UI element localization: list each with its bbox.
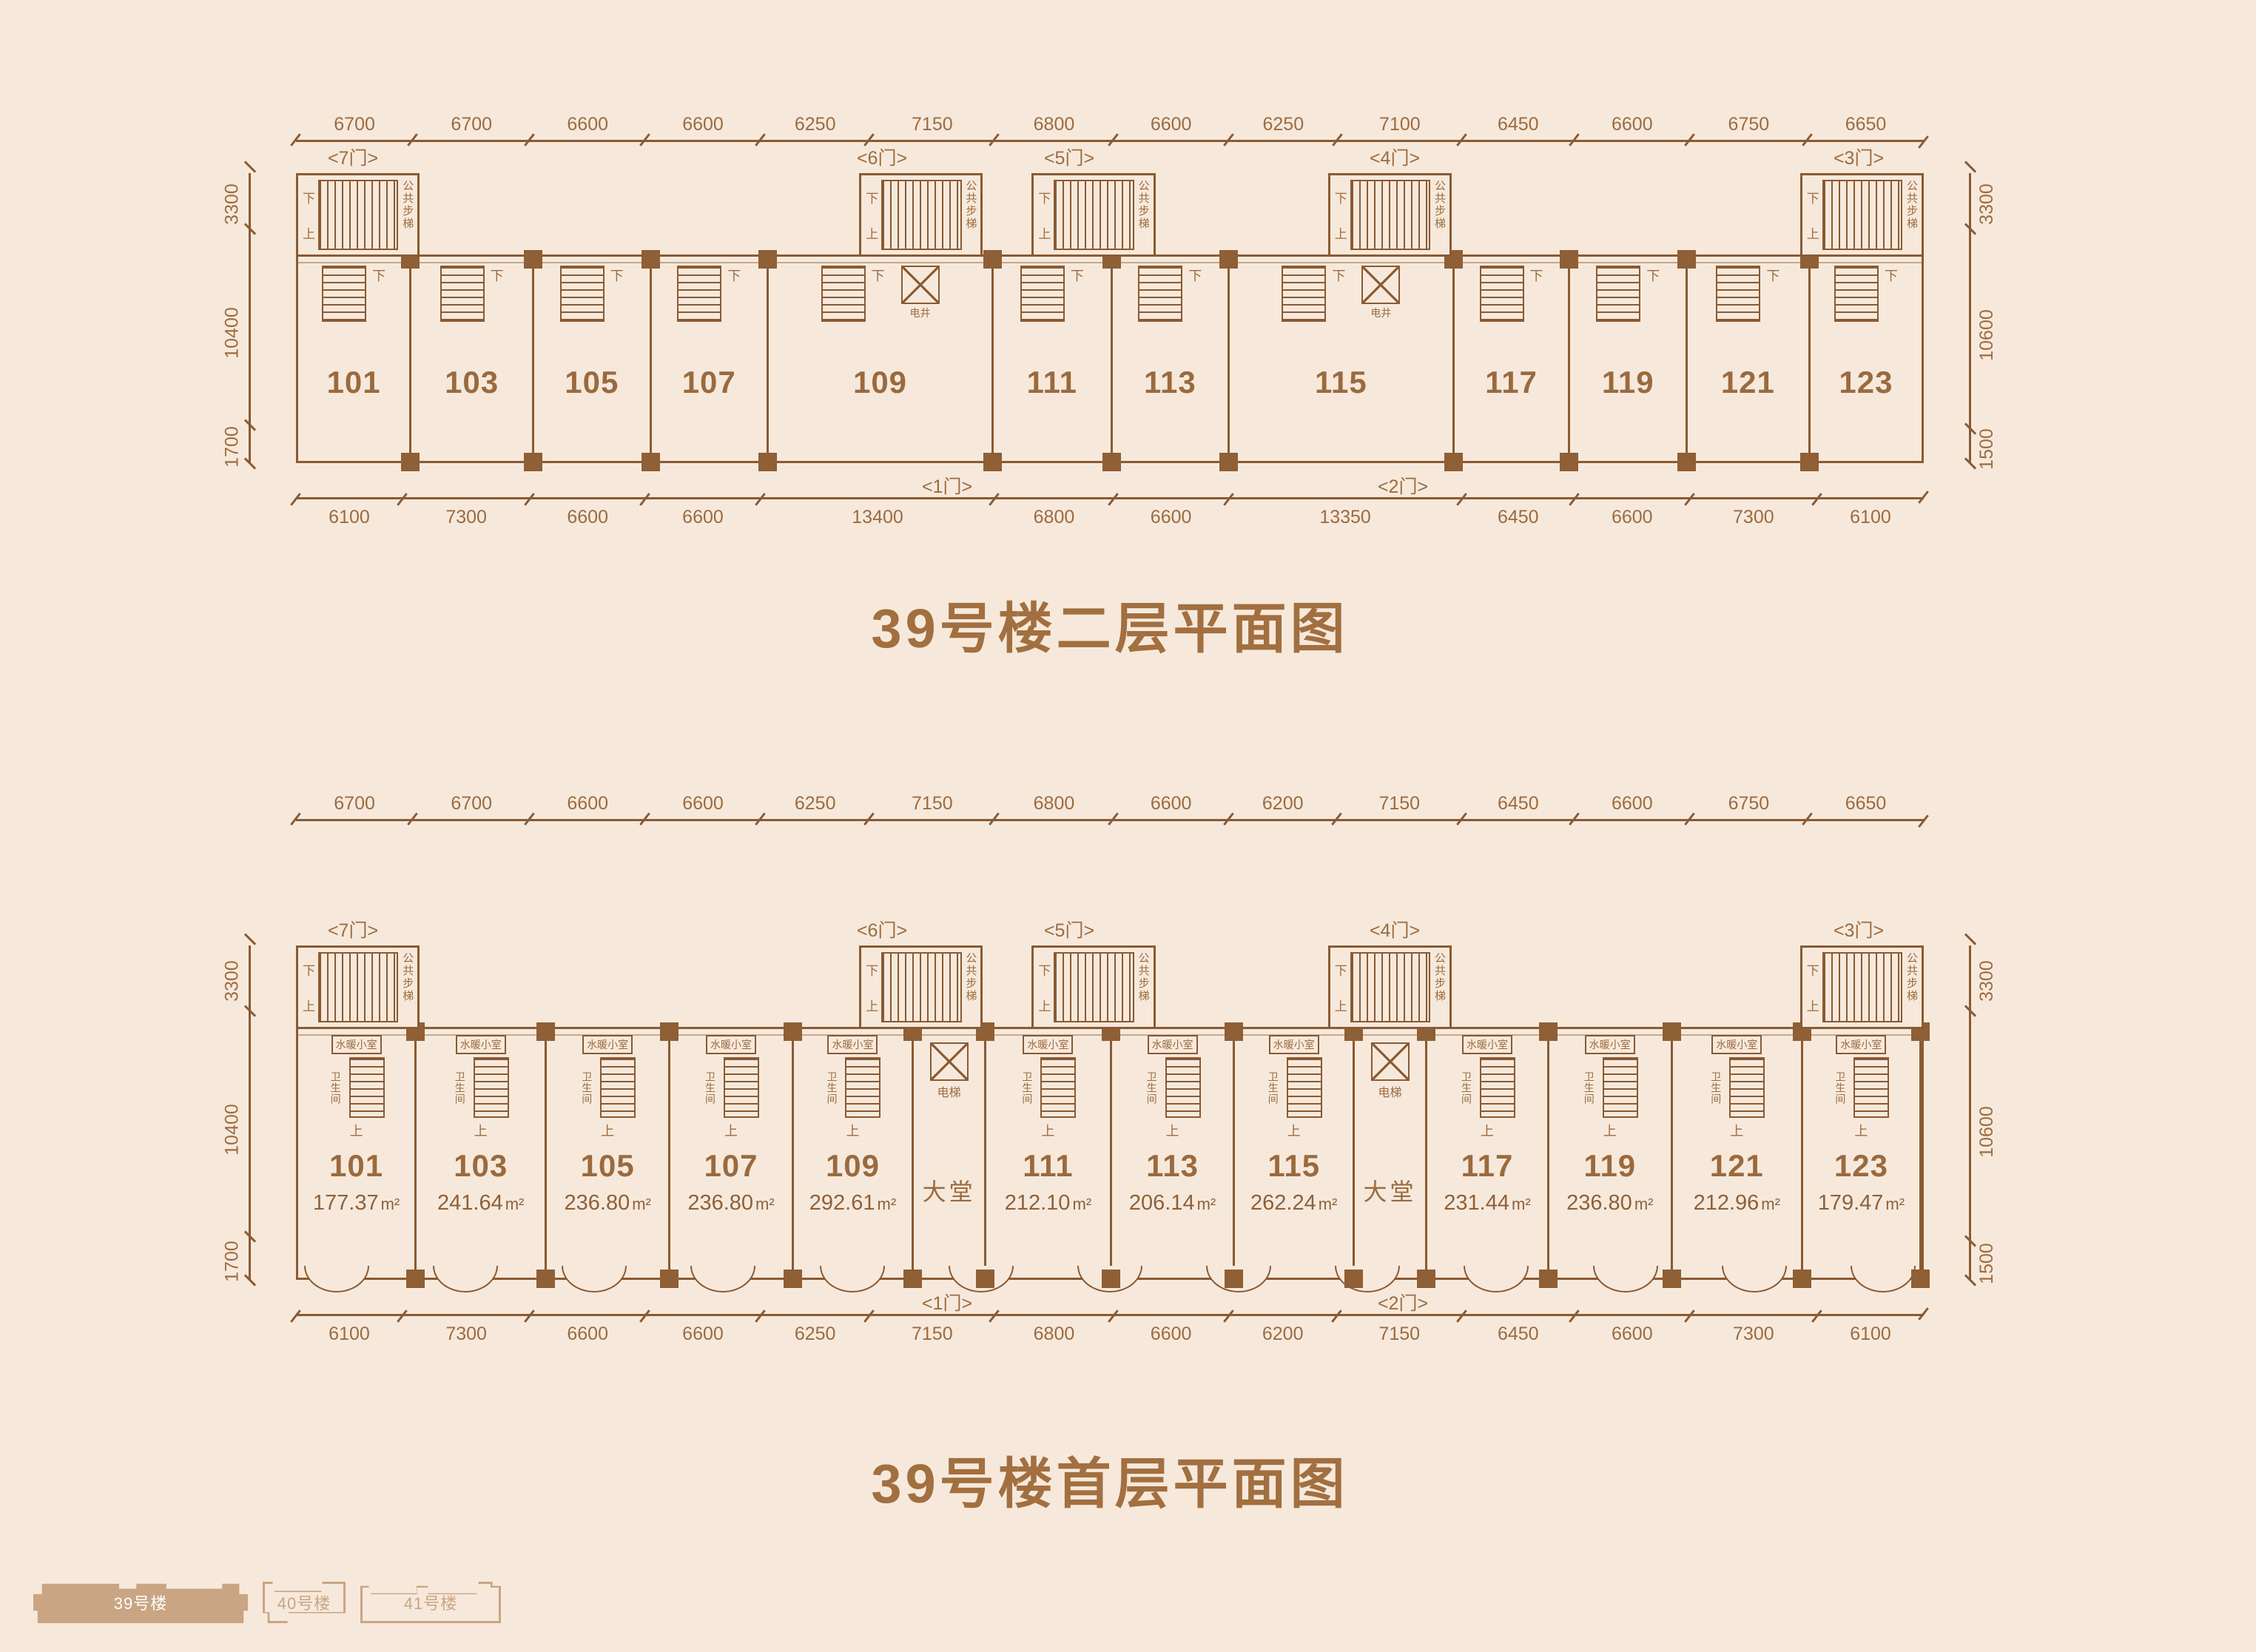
dimension-segment: 6600 <box>1575 1314 1690 1352</box>
bathroom-label: 卫生间 <box>579 1071 594 1105</box>
unit-area: 241.64m² <box>417 1191 545 1216</box>
area-unit-label: m² <box>505 1195 525 1214</box>
dimension-label: 6450 <box>1462 114 1575 135</box>
bathroom-label: 卫生间 <box>1145 1071 1159 1105</box>
dimension-label: 10600 <box>1977 309 1999 361</box>
stair-direction-label: 上 <box>866 996 878 1014</box>
dimension-segment: 6600 <box>1114 1314 1229 1352</box>
dimension-label: 6600 <box>645 793 761 815</box>
dimension-segment: 6600 <box>530 104 645 142</box>
unit-area: 177.37m² <box>298 1191 414 1216</box>
bathroom-label: 卫生间 <box>1833 1071 1848 1105</box>
building-tab-label: 40号楼 <box>263 1582 346 1623</box>
utility-room-label: 水暖小室 <box>1711 1035 1762 1054</box>
dimension-segment: 6750 <box>1690 104 1808 142</box>
dimension-label: 10400 <box>222 1105 243 1156</box>
unit-area-value: 236.80 <box>565 1191 630 1216</box>
unit-area: 236.80m² <box>547 1191 668 1216</box>
dimension-segment: 6250 <box>1229 104 1339 142</box>
unit-cell: 电梯大堂 <box>1355 1029 1427 1278</box>
dimension-label: 7300 <box>1690 507 1817 528</box>
dimension-label: 1500 <box>1977 1243 1999 1284</box>
elec-shaft-label: 电井 <box>910 306 931 320</box>
stair-direction-label: 下 <box>866 188 878 206</box>
building-tab-40号楼[interactable]: 40号楼 <box>263 1582 346 1623</box>
dimension-segment: 1500 <box>1969 435 1971 463</box>
unit-area: 179.47m² <box>1803 1191 1919 1216</box>
stairs-icon <box>318 180 398 250</box>
dimension-label: 6100 <box>296 1324 403 1345</box>
dimension-segment: 3300 <box>1969 945 1971 1017</box>
stair-direction-label: 上 <box>846 1121 859 1140</box>
dimension-label: 6700 <box>296 114 413 135</box>
floor-plan-page: 6700670066006600625071506800660062507100… <box>0 0 2256 1652</box>
dimension-label: 6100 <box>1817 507 1924 528</box>
dimension-segment: 6600 <box>1575 497 1690 536</box>
unit-area-value: 231.44 <box>1444 1191 1509 1216</box>
stair-direction-label: 下 <box>1807 188 1819 206</box>
stair-direction-label: 下 <box>303 188 315 206</box>
dimension-segment: 6750 <box>1690 783 1808 821</box>
dimension-segment: 6450 <box>1462 783 1575 821</box>
stair-direction-label: 下 <box>491 266 504 285</box>
unit-area-value: 236.80 <box>1566 1191 1632 1216</box>
dimension-label: 10600 <box>1977 1107 1999 1159</box>
dimension-label: 6600 <box>645 114 761 135</box>
utility-room-label: 水暖小室 <box>1462 1035 1512 1054</box>
door-label: <7门> <box>328 144 378 170</box>
plan-title: 39号楼二层平面图 <box>296 584 1924 664</box>
unit-cell: 下121 <box>1688 257 1811 461</box>
unit-number: 119 <box>1570 365 1685 400</box>
building-selector: 39号楼40号楼41号楼 <box>33 1582 501 1623</box>
door-label: <1门> <box>922 472 972 499</box>
dimension-segment: 7150 <box>1337 1314 1462 1352</box>
dimension-segment: 7300 <box>1690 497 1817 536</box>
dimension-segment: 6600 <box>645 497 761 536</box>
dimension-segment: 6600 <box>645 104 761 142</box>
utility-room-label: 水暖小室 <box>706 1035 756 1054</box>
dimension-label: 6700 <box>296 793 413 815</box>
building-tab-label: 39号楼 <box>33 1582 248 1623</box>
dimension-segment: 10400 <box>249 1017 251 1243</box>
stair-direction-label: 上 <box>1730 1121 1743 1140</box>
utility-room-label: 水暖小室 <box>331 1035 382 1054</box>
dimension-segment: 6450 <box>1462 104 1575 142</box>
unit-cell: 水暖小室卫生间上103241.64m² <box>417 1029 547 1278</box>
door-arch-icon <box>304 1266 369 1292</box>
plan-title: 39号楼首层平面图 <box>296 1440 1924 1519</box>
dimension-label: 6600 <box>1114 1324 1229 1345</box>
dimension-label: 7150 <box>869 1324 994 1345</box>
unit-cell: 水暖小室卫生间上107236.80m² <box>670 1029 794 1278</box>
unit-number: 121 <box>1688 365 1808 400</box>
door-label: <3门> <box>1834 144 1884 170</box>
dimension-label: 6450 <box>1462 1324 1575 1345</box>
dimension-label: 6600 <box>1575 1324 1690 1345</box>
stair-direction-label: 下 <box>610 266 624 285</box>
unit-cell: 水暖小室卫生间上113206.14m² <box>1112 1029 1236 1278</box>
bathroom-label: 卫生间 <box>1020 1071 1034 1105</box>
ground-floor-plan: 6700670066006600625071506800660062007150… <box>296 783 1924 1519</box>
dimension-label: 6100 <box>1817 1324 1924 1345</box>
door-label: <4门> <box>1370 144 1420 170</box>
unit-cell: 下111 <box>994 257 1113 461</box>
unit-number: 113 <box>1112 1148 1233 1184</box>
public-stair-label: 公共步梯 <box>1905 180 1917 250</box>
door-arch-icon <box>433 1266 498 1292</box>
dimension-label: 6250 <box>1229 114 1339 135</box>
door-label: <6门> <box>857 144 907 170</box>
unit-number: 109 <box>794 1148 912 1184</box>
unit-area-value: 206.14 <box>1129 1191 1195 1216</box>
dimension-segment: 7150 <box>869 783 994 821</box>
unit-number: 103 <box>411 365 532 400</box>
elevator-label: 电梯 <box>937 1082 961 1100</box>
stairs-icon <box>1054 180 1134 250</box>
dimension-segment: 7100 <box>1338 104 1462 142</box>
stairs-icon <box>1020 266 1065 322</box>
public-stair-label: 公共步梯 <box>401 952 413 1022</box>
stairs-icon <box>318 952 398 1022</box>
utility-room-label: 水暖小室 <box>582 1035 633 1054</box>
public-stair-label: 公共步梯 <box>1905 952 1917 1022</box>
dimension-segment: 7150 <box>1337 783 1462 821</box>
utility-room-label: 水暖小室 <box>1148 1035 1198 1054</box>
door-label: <6门> <box>857 916 907 943</box>
public-stair-label: 公共步梯 <box>1137 180 1149 250</box>
dimension-segment: 6800 <box>994 1314 1114 1352</box>
public-stair-label: 公共步梯 <box>965 180 977 250</box>
bathroom-label: 卫生间 <box>703 1071 718 1105</box>
dimension-segment: 1700 <box>249 1243 251 1280</box>
unit-number: 101 <box>298 1148 414 1184</box>
public-stair-label: 公共步梯 <box>1433 180 1445 250</box>
unit-area-value: 212.96 <box>1694 1191 1760 1216</box>
dimension-column-left: 3300104001700 <box>249 945 251 1280</box>
bathroom-label: 卫生间 <box>453 1071 468 1105</box>
unit-number: 103 <box>417 1148 545 1184</box>
dimension-label: 6200 <box>1229 793 1337 815</box>
utility-room-label: 水暖小室 <box>827 1035 878 1054</box>
dimension-segment: 6200 <box>1229 783 1337 821</box>
stairs-icon <box>600 1057 636 1118</box>
dimension-label: 6650 <box>1808 114 1924 135</box>
door-label: <2门> <box>1378 1289 1428 1315</box>
building-outline: 下101下103下105下107下电井109下111下113下电井115下117… <box>296 254 1924 463</box>
stair-direction-label: 上 <box>1807 996 1819 1014</box>
stair-direction-label: 上 <box>1854 1121 1868 1140</box>
unit-number: 107 <box>652 365 767 400</box>
door-label: <7门> <box>328 916 378 943</box>
stairs-icon <box>1350 180 1430 250</box>
dimension-label: 7150 <box>1337 793 1462 815</box>
dimension-label: 6600 <box>1575 793 1690 815</box>
dimension-label: 1700 <box>222 427 243 468</box>
dimension-segment: 7300 <box>403 497 530 536</box>
stairs-icon <box>1165 1057 1201 1118</box>
elevator-icon <box>901 266 940 304</box>
unit-number: 107 <box>670 1148 792 1184</box>
building-tab-39号楼[interactable]: 39号楼 <box>33 1582 248 1623</box>
dimension-label: 6800 <box>994 793 1114 815</box>
unit-area: 236.80m² <box>670 1191 792 1216</box>
dimension-segment: 6650 <box>1808 783 1924 821</box>
dimension-label: 6600 <box>645 1324 761 1345</box>
area-unit-label: m² <box>381 1195 400 1214</box>
stair-direction-label: 上 <box>303 223 315 242</box>
dimension-segment: 6250 <box>761 783 870 821</box>
building-tab-41号楼[interactable]: 41号楼 <box>360 1582 501 1623</box>
dimension-segment: 6600 <box>1114 104 1229 142</box>
dimension-label: 6750 <box>1690 114 1808 135</box>
dimension-segment: 6250 <box>761 1314 870 1352</box>
dimension-label: 6800 <box>994 1324 1114 1345</box>
stair-direction-label: 下 <box>1335 960 1347 979</box>
unit-number: 121 <box>1673 1148 1801 1184</box>
door-arch-icon <box>690 1266 755 1292</box>
dimension-row-top: 6700670066006600625071506800660062507100… <box>296 104 1924 142</box>
area-unit-label: m² <box>755 1195 775 1214</box>
dimension-label: 6600 <box>1114 507 1229 528</box>
public-stair-label: 公共步梯 <box>1137 952 1149 1022</box>
stairs-icon <box>1138 266 1182 322</box>
stair-direction-label: 上 <box>1038 223 1051 242</box>
dimension-segment: 6600 <box>1114 783 1229 821</box>
stairs-icon <box>1480 266 1524 322</box>
stair-direction-label: 下 <box>1885 266 1898 285</box>
dimension-label: 6800 <box>994 507 1114 528</box>
unit-cell: 下电井115 <box>1230 257 1455 461</box>
stair-core: 下上公共步梯 <box>296 173 420 257</box>
dimension-segment: 6600 <box>1575 783 1690 821</box>
bathroom-label: 卫生间 <box>329 1071 343 1105</box>
dimension-segment: 7300 <box>403 1314 530 1352</box>
stairs-icon <box>1040 1057 1076 1118</box>
stair-direction-label: 上 <box>1287 1121 1301 1140</box>
stair-direction-label: 下 <box>1332 266 1345 285</box>
stair-core-zone: 下上公共步梯下上公共步梯下上公共步梯下上公共步梯下上公共步梯 <box>296 945 1924 1027</box>
bathroom-label: 卫生间 <box>824 1071 839 1105</box>
stair-core-zone: 下上公共步梯下上公共步梯下上公共步梯下上公共步梯下上公共步梯 <box>296 173 1924 254</box>
door-label: <5门> <box>1044 916 1094 943</box>
stairs-icon <box>1822 180 1902 250</box>
unit-cell: 下123 <box>1811 257 1922 461</box>
dimension-label: 6450 <box>1462 793 1575 815</box>
unit-number: 111 <box>986 1148 1109 1184</box>
dimension-segment: 6650 <box>1808 104 1924 142</box>
unit-number: 123 <box>1803 1148 1919 1184</box>
building-band-area: 3300104001700 3300106001500 下上公共步梯下上公共步梯… <box>296 945 1924 1280</box>
dimension-segment: 10400 <box>249 235 251 431</box>
stairs-icon <box>440 266 485 322</box>
stair-direction-label: 上 <box>474 1121 488 1140</box>
unit-area-value: 236.80 <box>687 1191 753 1216</box>
stair-direction-label: 上 <box>1603 1121 1617 1140</box>
stair-direction-label: 下 <box>1766 266 1779 285</box>
unit-area: 212.10m² <box>986 1191 1109 1216</box>
stair-direction-label: 上 <box>1807 223 1819 242</box>
dimension-label: 6600 <box>1114 114 1229 135</box>
elevator-icon <box>930 1042 969 1081</box>
dimension-segment: 6250 <box>761 104 870 142</box>
dimension-label: 6200 <box>1229 1324 1337 1345</box>
unit-area: 262.24m² <box>1235 1191 1352 1216</box>
unit-number: 117 <box>1427 1148 1547 1184</box>
dimension-segment: 6600 <box>645 1314 761 1352</box>
dimension-segment: 1700 <box>249 431 251 463</box>
dimension-segment: 6200 <box>1229 1314 1337 1352</box>
unit-number: 105 <box>547 1148 668 1184</box>
unit-area-value: 212.10 <box>1005 1191 1071 1216</box>
stairs-icon <box>845 1057 880 1118</box>
stair-direction-label: 上 <box>1335 223 1347 242</box>
dimension-label: 6650 <box>1808 793 1924 815</box>
stair-direction-label: 上 <box>1038 996 1051 1014</box>
dimension-segment: 13350 <box>1229 497 1462 536</box>
stair-direction-label: 下 <box>1038 188 1051 206</box>
dimension-segment: 7300 <box>1690 1314 1817 1352</box>
dimension-segment: 6700 <box>413 104 530 142</box>
utility-room-label: 水暖小室 <box>1269 1035 1319 1054</box>
stairs-icon <box>1596 266 1640 322</box>
unit-area: 292.61m² <box>794 1191 912 1216</box>
lobby-label: 大堂 <box>1355 1173 1425 1207</box>
door-labels-top-row: <7门><6门><5门><4门><3门> <box>296 821 1924 945</box>
unit-cell: 水暖小室卫生间上115262.24m² <box>1235 1029 1354 1278</box>
area-unit-label: m² <box>1319 1195 1338 1214</box>
stair-direction-label: 下 <box>372 266 385 285</box>
dimension-label: 6700 <box>413 793 530 815</box>
dimension-segment: 6600 <box>530 783 645 821</box>
area-unit-label: m² <box>1885 1195 1905 1214</box>
dimension-segment: 6600 <box>530 497 645 536</box>
stair-core: 下上公共步梯 <box>1800 173 1924 257</box>
unit-cell: 下119 <box>1570 257 1687 461</box>
stairs-icon <box>1716 266 1760 322</box>
unit-cell: 水暖小室卫生间上111212.10m² <box>986 1029 1111 1278</box>
second-floor-plan: 6700670066006600625071506800660062507100… <box>296 104 1924 664</box>
dimension-segment: 6100 <box>296 497 403 536</box>
stair-core: 下上公共步梯 <box>859 945 983 1029</box>
dimension-row-bottom: 6100730066006600134006800660013350645066… <box>296 497 1924 536</box>
area-unit-label: m² <box>1072 1195 1091 1214</box>
stair-direction-label: 上 <box>724 1121 738 1140</box>
door-label: <1门> <box>922 1289 972 1315</box>
unit-area: 206.14m² <box>1112 1191 1233 1216</box>
stair-direction-label: 下 <box>1807 960 1819 979</box>
dimension-label: 6600 <box>1114 793 1229 815</box>
stair-direction-label: 下 <box>1188 266 1202 285</box>
unit-number: 115 <box>1230 365 1452 400</box>
stair-core: 下上公共步梯 <box>296 945 420 1029</box>
dimension-label: 6600 <box>645 507 761 528</box>
unit-area-value: 241.64 <box>437 1191 503 1216</box>
area-unit-label: m² <box>878 1195 897 1214</box>
dimension-column-right: 3300106001500 <box>1969 945 1971 1280</box>
stair-direction-label: 下 <box>1071 266 1084 285</box>
lobby-label: 大堂 <box>914 1173 984 1207</box>
door-label: <4门> <box>1370 916 1420 943</box>
dimension-label: 10400 <box>222 308 243 360</box>
dimension-segment: 6450 <box>1462 497 1575 536</box>
stair-core: 下上公共步梯 <box>1031 173 1155 257</box>
stairs-icon <box>1350 952 1430 1022</box>
stairs-icon <box>1603 1057 1638 1118</box>
door-label: <3门> <box>1834 916 1884 943</box>
dimension-label: 1700 <box>222 1241 243 1282</box>
elec-shaft-label: 电井 <box>1370 306 1391 320</box>
area-unit-label: m² <box>1197 1195 1216 1214</box>
unit-number: 113 <box>1113 365 1228 400</box>
public-stair-label: 公共步梯 <box>401 180 413 250</box>
stairs-icon <box>1729 1057 1765 1118</box>
dimension-segment: 6450 <box>1462 1314 1575 1352</box>
unit-cell: 下117 <box>1455 257 1571 461</box>
dimension-label: 6600 <box>530 793 645 815</box>
door-arch-icon <box>562 1266 627 1292</box>
public-stair-label: 公共步梯 <box>965 952 977 1022</box>
unit-cell: 下103 <box>411 257 534 461</box>
dimension-label: 3300 <box>222 183 243 225</box>
stairs-icon <box>1480 1057 1515 1118</box>
utility-room-label: 水暖小室 <box>1585 1035 1635 1054</box>
stair-direction-label: 下 <box>303 960 315 979</box>
dimension-segment: 3300 <box>249 945 251 1017</box>
building-tab-label: 41号楼 <box>360 1582 501 1623</box>
dimension-label: 7300 <box>403 507 530 528</box>
stair-direction-label: 下 <box>1530 266 1543 285</box>
unit-cell: 下101 <box>298 257 411 461</box>
stair-core: 下上公共步梯 <box>859 173 983 257</box>
dimension-segment: 1500 <box>1969 1247 1971 1280</box>
unit-number: 111 <box>994 365 1111 400</box>
dimension-segment: 6800 <box>994 783 1114 821</box>
area-unit-label: m² <box>1512 1195 1531 1214</box>
unit-number: 115 <box>1235 1148 1352 1184</box>
stair-core: 下上公共步梯 <box>1031 945 1155 1029</box>
area-unit-label: m² <box>1761 1195 1780 1214</box>
dimension-label: 7100 <box>1338 114 1462 135</box>
dimension-label: 7150 <box>869 114 994 135</box>
stairs-icon <box>821 266 866 322</box>
elevator-icon <box>1371 1042 1410 1081</box>
unit-number: 101 <box>298 365 409 400</box>
dimension-segment: 6600 <box>530 1314 645 1352</box>
unit-area-value: 177.37 <box>313 1191 379 1216</box>
door-labels-top-row: <7门><6门><5门><4门><3门> <box>296 142 1924 173</box>
stairs-icon <box>1834 266 1879 322</box>
unit-cell: 下113 <box>1113 257 1230 461</box>
stair-direction-label: 上 <box>1481 1121 1494 1140</box>
dimension-label: 6700 <box>413 114 530 135</box>
dimension-label: 6250 <box>761 114 870 135</box>
unit-cell: 水暖小室卫生间上109292.61m² <box>794 1029 914 1278</box>
stairs-icon <box>1054 952 1134 1022</box>
unit-cell: 水暖小室卫生间上117231.44m² <box>1427 1029 1549 1278</box>
stairs-icon <box>474 1057 509 1118</box>
building-outline: 水暖小室卫生间上101177.37m²水暖小室卫生间上103241.64m²水暖… <box>296 1027 1924 1280</box>
dimension-segment: 6100 <box>1817 1314 1924 1352</box>
door-arch-icon <box>1464 1266 1529 1292</box>
stairs-icon <box>881 180 961 250</box>
utility-room-label: 水暖小室 <box>1836 1035 1886 1054</box>
utility-room-label: 水暖小室 <box>1023 1035 1073 1054</box>
stair-direction-label: 下 <box>1038 960 1051 979</box>
dimension-segment: 6700 <box>296 104 413 142</box>
dimension-segment: 6700 <box>296 783 413 821</box>
stairs-icon <box>560 266 605 322</box>
